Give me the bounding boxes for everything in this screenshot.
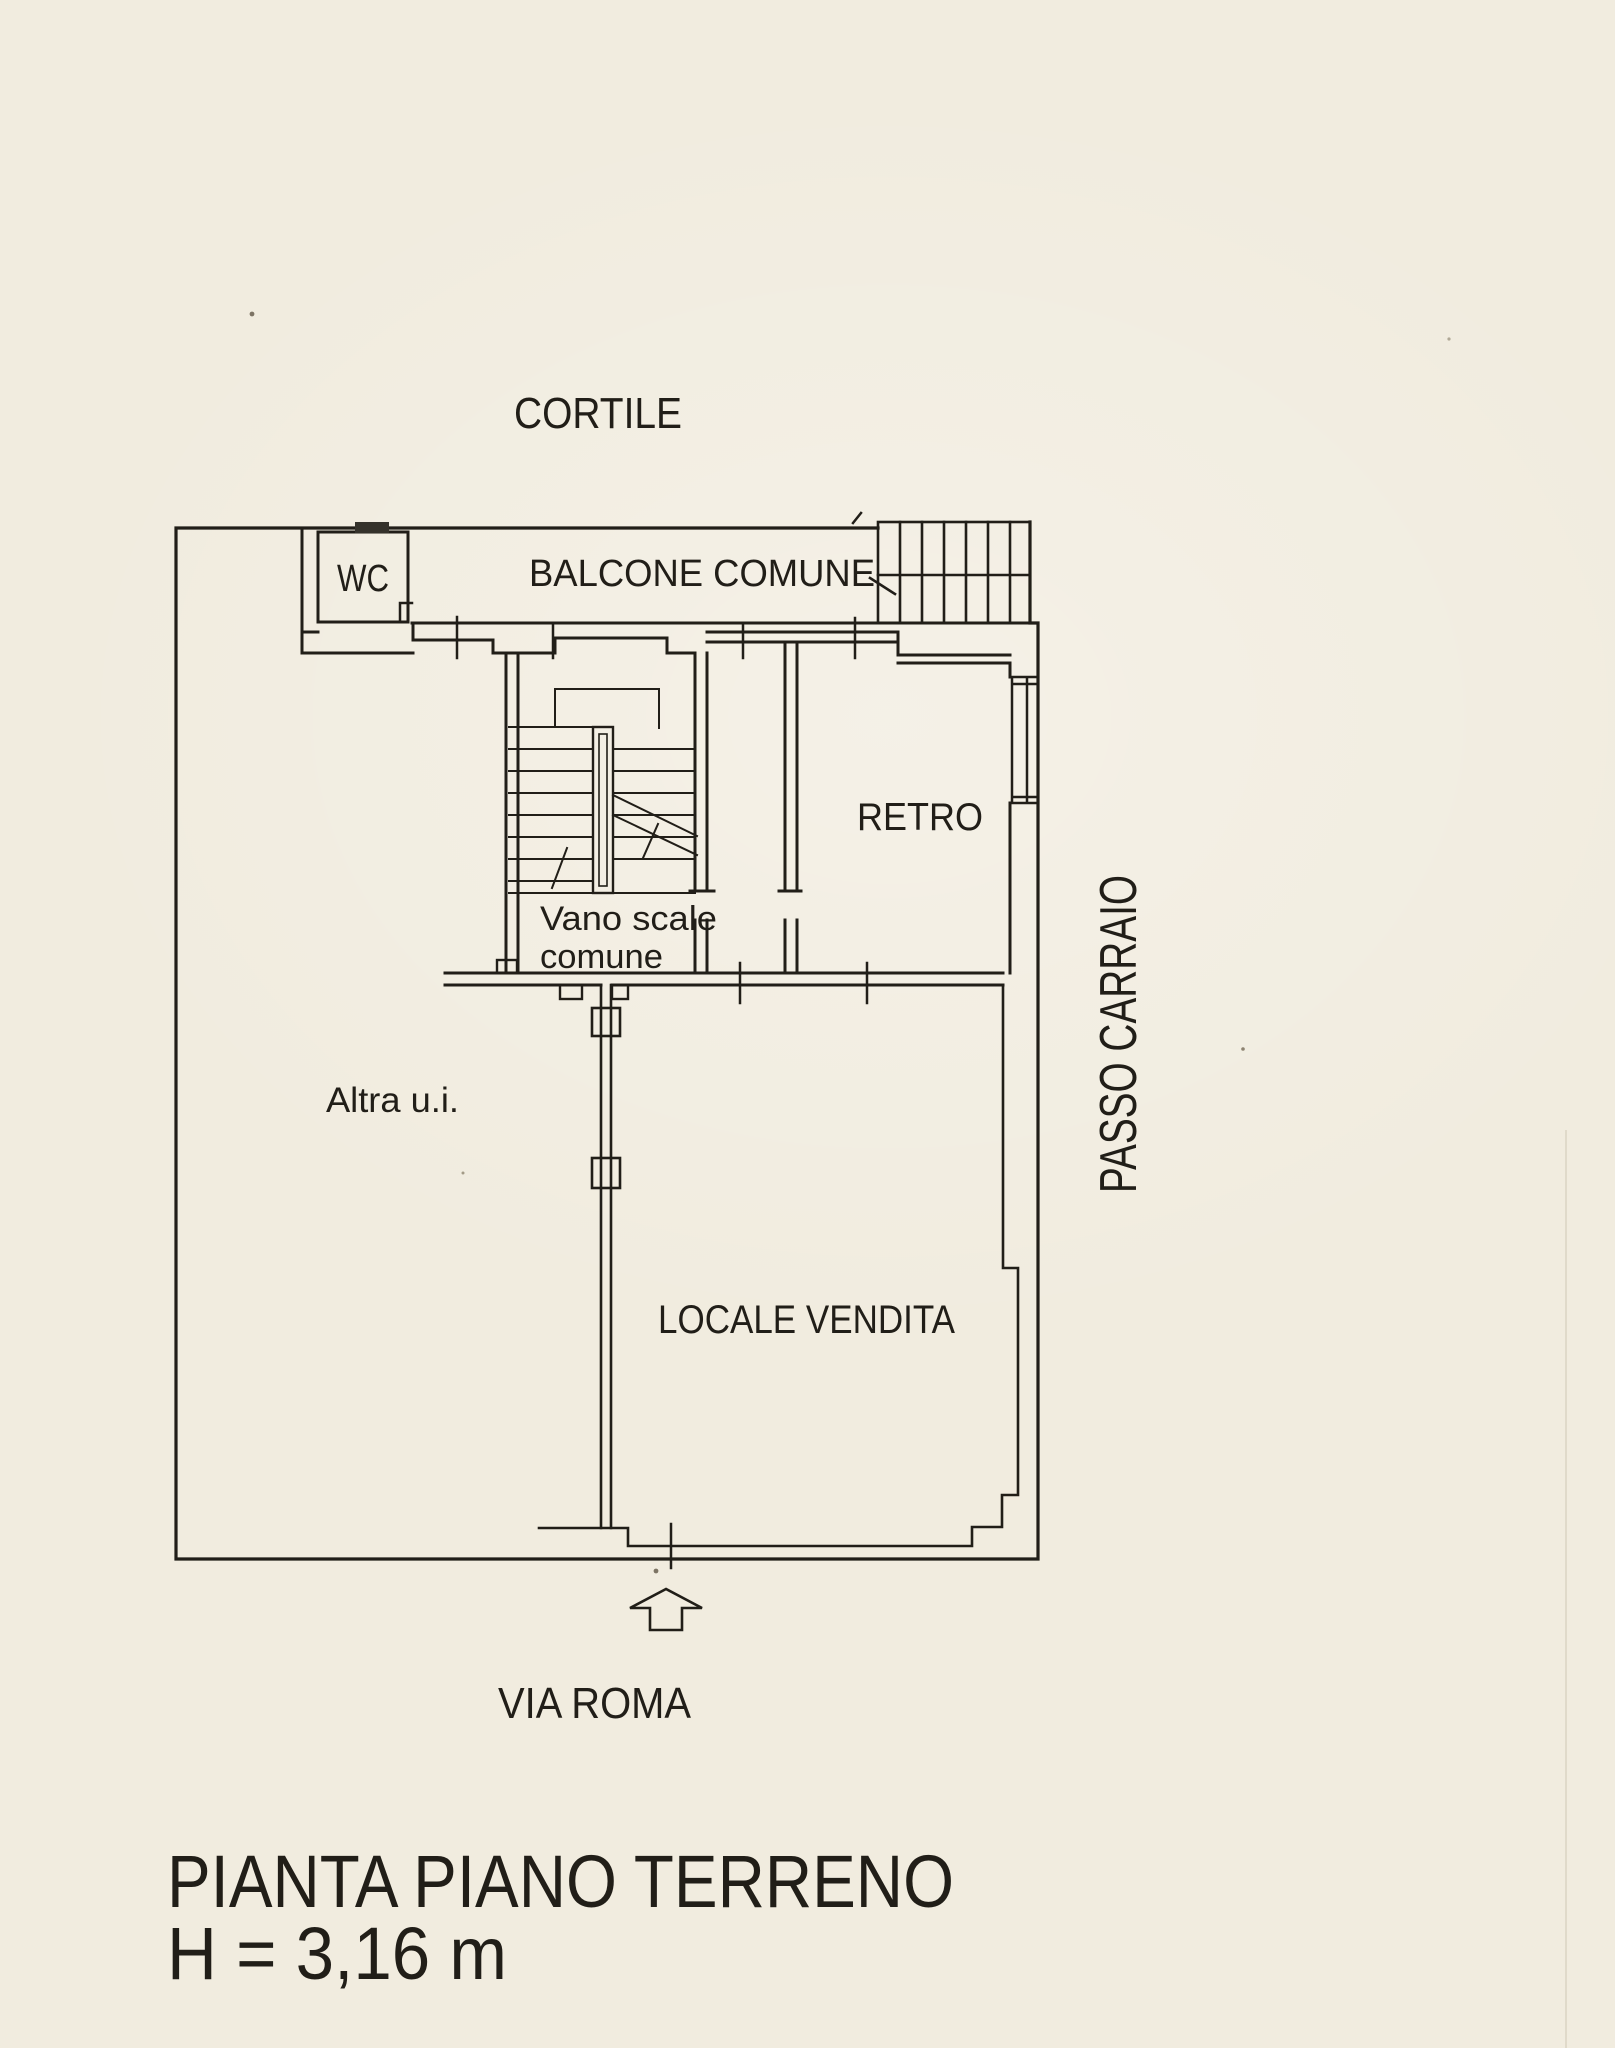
stair-landing: [555, 689, 659, 728]
label-retro: RETRO: [857, 796, 983, 839]
drawing-title: PIANTA PIANO TERRENO H = 3,16 m: [167, 1840, 954, 1995]
label-vano-scale-line1: Vano scale: [540, 900, 717, 938]
outer-walls: [176, 522, 1038, 1559]
scanned-floor-plan-page: CORTILE BALCONE COMUNE WC RETRO Vano sca…: [0, 0, 1615, 2048]
scan-specks: [250, 312, 1451, 1574]
staircase: [509, 689, 697, 893]
stair-cut-lines: [613, 795, 697, 855]
label-cortile: CORTILE: [514, 389, 682, 438]
label-locale-vendita: LOCALE VENDITA: [658, 1298, 955, 1342]
label-vano-scale-line2: comune: [540, 938, 663, 976]
stair-rail-inner: [599, 734, 607, 886]
partition-walls: [539, 985, 1018, 1546]
window-niche: [1012, 677, 1037, 803]
walls: [176, 513, 1038, 1568]
stair-direction-arrows: [552, 824, 658, 888]
labels: CORTILE BALCONE COMUNE WC RETRO Vano sca…: [326, 389, 1148, 1728]
label-altra-ui: Altra u.i.: [326, 1081, 459, 1120]
stair-treads-left: [509, 727, 695, 893]
drawing-title-line2: H = 3,16 m: [167, 1912, 507, 1995]
label-passo-carraio: PASSO CARRAIO: [1090, 875, 1148, 1193]
external-stairs: [870, 522, 1030, 623]
stair-rail-outer: [593, 727, 613, 893]
label-balcone-comune: BALCONE COMUNE: [529, 553, 875, 595]
wall-vent-mark: [355, 522, 389, 533]
drawing-title-line1: PIANTA PIANO TERRENO: [167, 1840, 954, 1923]
wc-door-jamb: [400, 603, 412, 622]
entrance-arrow-icon: [630, 1589, 702, 1630]
label-via-roma: VIA ROMA: [498, 1679, 692, 1728]
stair-treads-right: [613, 749, 695, 859]
mid-wall: [445, 960, 1003, 999]
floor-plan-canvas: CORTILE BALCONE COMUNE WC RETRO Vano sca…: [0, 0, 1615, 2048]
label-wc: WC: [337, 558, 389, 600]
